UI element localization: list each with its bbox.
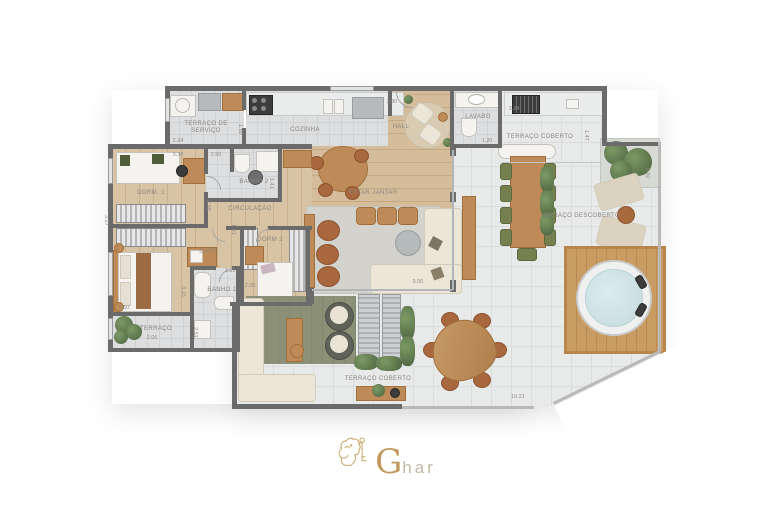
dimension-label: 1.20 — [482, 138, 493, 144]
dimension-label: 1.80 — [237, 124, 243, 135]
room-label-terraco-coberto-bottom: TERRAÇO COBERTO — [345, 376, 411, 383]
room-label-hall: HALL — [393, 124, 410, 131]
wall-segment — [230, 148, 234, 172]
window — [108, 318, 113, 340]
dimension-label: 2.20 — [245, 283, 256, 289]
dimension-label: 6.92 — [644, 168, 650, 179]
coffee-table — [395, 230, 421, 256]
terrace-bench — [462, 196, 476, 280]
wall-segment — [230, 302, 312, 306]
wall-segment — [232, 404, 402, 409]
wall-segment — [232, 302, 237, 409]
room-label-terraco-coberto-top: TERRAÇO COBERTO — [507, 134, 573, 141]
kitchen-sink — [323, 99, 333, 114]
floor-plan: TERRAÇO DE SERVIÇO COZINHA HALL LAVABO T… — [0, 0, 768, 513]
room-label-estar-jantar: ESTAR JANTAR — [349, 190, 398, 197]
pillow — [152, 154, 164, 164]
window — [108, 158, 113, 184]
lavabo-basin — [468, 94, 485, 105]
vanity — [194, 272, 211, 298]
dimension-label: 1.41 — [268, 178, 274, 189]
plant — [114, 330, 128, 344]
ottoman — [398, 207, 418, 225]
room-label-lavabo: LAVABO — [465, 114, 491, 121]
outdoor-sofa — [238, 374, 316, 402]
room-label-terraco-descoberto: TERRAÇO DESCOBERTO — [540, 213, 620, 220]
bar-sink — [566, 99, 579, 109]
sliding-glass-door — [452, 150, 454, 290]
wall-segment — [602, 142, 660, 146]
ottoman — [356, 207, 376, 225]
hall-cabinet — [283, 150, 312, 168]
sliding-glass-door — [312, 289, 452, 291]
wall-segment — [498, 90, 502, 146]
hedge — [400, 306, 415, 340]
room-label-circulacao: CIRCULAÇÃO — [228, 206, 271, 213]
parapet — [658, 142, 661, 354]
window — [108, 252, 113, 296]
wall-segment — [204, 198, 282, 202]
dimension-label: 5.50 — [413, 279, 424, 285]
ghar-logo: G har — [332, 434, 436, 477]
dimension-label: 10.21 — [511, 394, 525, 400]
hedge — [376, 356, 402, 371]
chair — [500, 229, 512, 246]
service-shelf — [222, 93, 244, 111]
dimension-label: 2.98 — [205, 200, 211, 211]
round-lounge-cushion — [330, 306, 348, 324]
bowl — [390, 388, 400, 398]
wardrobe — [116, 228, 186, 247]
window — [330, 86, 374, 91]
wall-segment — [108, 348, 240, 352]
wall-segment — [450, 90, 454, 146]
planter — [382, 294, 401, 358]
dimension-label: 1.51 — [225, 268, 236, 274]
burner — [261, 106, 266, 111]
parapet — [402, 406, 534, 409]
dimension-label: 3.34 — [509, 106, 520, 112]
armchair — [317, 266, 340, 287]
room-label-terraco-pequeno: TERRAÇO — [140, 326, 172, 333]
burner — [261, 98, 266, 103]
wardrobe — [116, 204, 186, 223]
ottoman — [377, 207, 397, 225]
chair — [354, 149, 369, 163]
dimension-label: 3.27 — [103, 215, 109, 226]
logo-initial: G — [375, 447, 402, 477]
dimension-label: 2.51 — [192, 327, 198, 338]
plant — [372, 384, 385, 397]
ceiling-line — [502, 162, 602, 163]
pillow — [120, 155, 130, 166]
dimension-label: 2.60 — [119, 305, 130, 311]
chair — [500, 207, 512, 224]
hedge — [354, 354, 378, 370]
dimension-label: 2.34 — [173, 138, 184, 144]
kitchen-sink — [334, 99, 344, 114]
room-label-terraco-servico: TERRAÇO DE SERVIÇO — [183, 121, 229, 135]
wall-segment — [450, 144, 502, 148]
wall-segment — [108, 312, 192, 316]
desk-chair — [176, 165, 188, 177]
room-label-dorm2: DORM 2 — [257, 237, 283, 244]
dimension-label: 2.90 — [387, 99, 398, 105]
armchair — [317, 220, 340, 241]
wall-segment — [278, 148, 282, 202]
pillow — [120, 255, 131, 279]
wall-segment — [204, 148, 208, 174]
outdoor-sofa — [238, 298, 264, 384]
chair — [500, 163, 512, 180]
wall-segment — [165, 86, 607, 91]
dimension-label: 2.06 — [147, 335, 158, 341]
room-label-cozinha: COZINHA — [290, 127, 320, 134]
room-label-suite: SUÍTE — [199, 249, 219, 256]
nightstand-lamp — [114, 243, 124, 253]
chair — [500, 185, 512, 202]
laundry-basin — [175, 98, 190, 113]
hall-side-table — [438, 112, 448, 122]
dimension-label: 1.47 — [583, 130, 589, 141]
logo-wordmark: har — [402, 458, 436, 477]
hedge — [400, 336, 415, 366]
wall-segment — [190, 266, 194, 352]
shower — [256, 151, 279, 172]
burner — [252, 98, 257, 103]
round-lounge-cushion — [330, 335, 348, 353]
burner — [252, 106, 257, 111]
fridge — [352, 97, 384, 119]
stool — [290, 344, 304, 358]
toilet — [234, 154, 250, 173]
room-label-banho2: BANHO 2 — [239, 179, 268, 186]
washing-machine — [198, 93, 221, 111]
dimension-label: 3.30 — [173, 152, 184, 158]
chair — [517, 248, 537, 261]
lion-key-icon — [332, 434, 372, 477]
hedge — [540, 166, 554, 192]
dimension-label: 3.15 — [180, 286, 186, 297]
room-label-banho1: BANHO 1 — [207, 287, 236, 294]
wall-segment — [602, 86, 607, 146]
chair — [318, 183, 333, 197]
planter — [358, 294, 380, 358]
room-label-dorm1: DORM. 1 — [137, 190, 165, 197]
armchair — [316, 244, 339, 265]
wall-segment — [108, 144, 248, 149]
dimension-label: 2.50 — [211, 152, 222, 158]
dimension-label: 1.91 — [230, 224, 236, 235]
window — [165, 98, 170, 122]
wall-segment — [242, 90, 246, 110]
wall-segment — [240, 226, 244, 306]
wall-segment — [108, 224, 208, 228]
bed-runner — [136, 253, 151, 309]
